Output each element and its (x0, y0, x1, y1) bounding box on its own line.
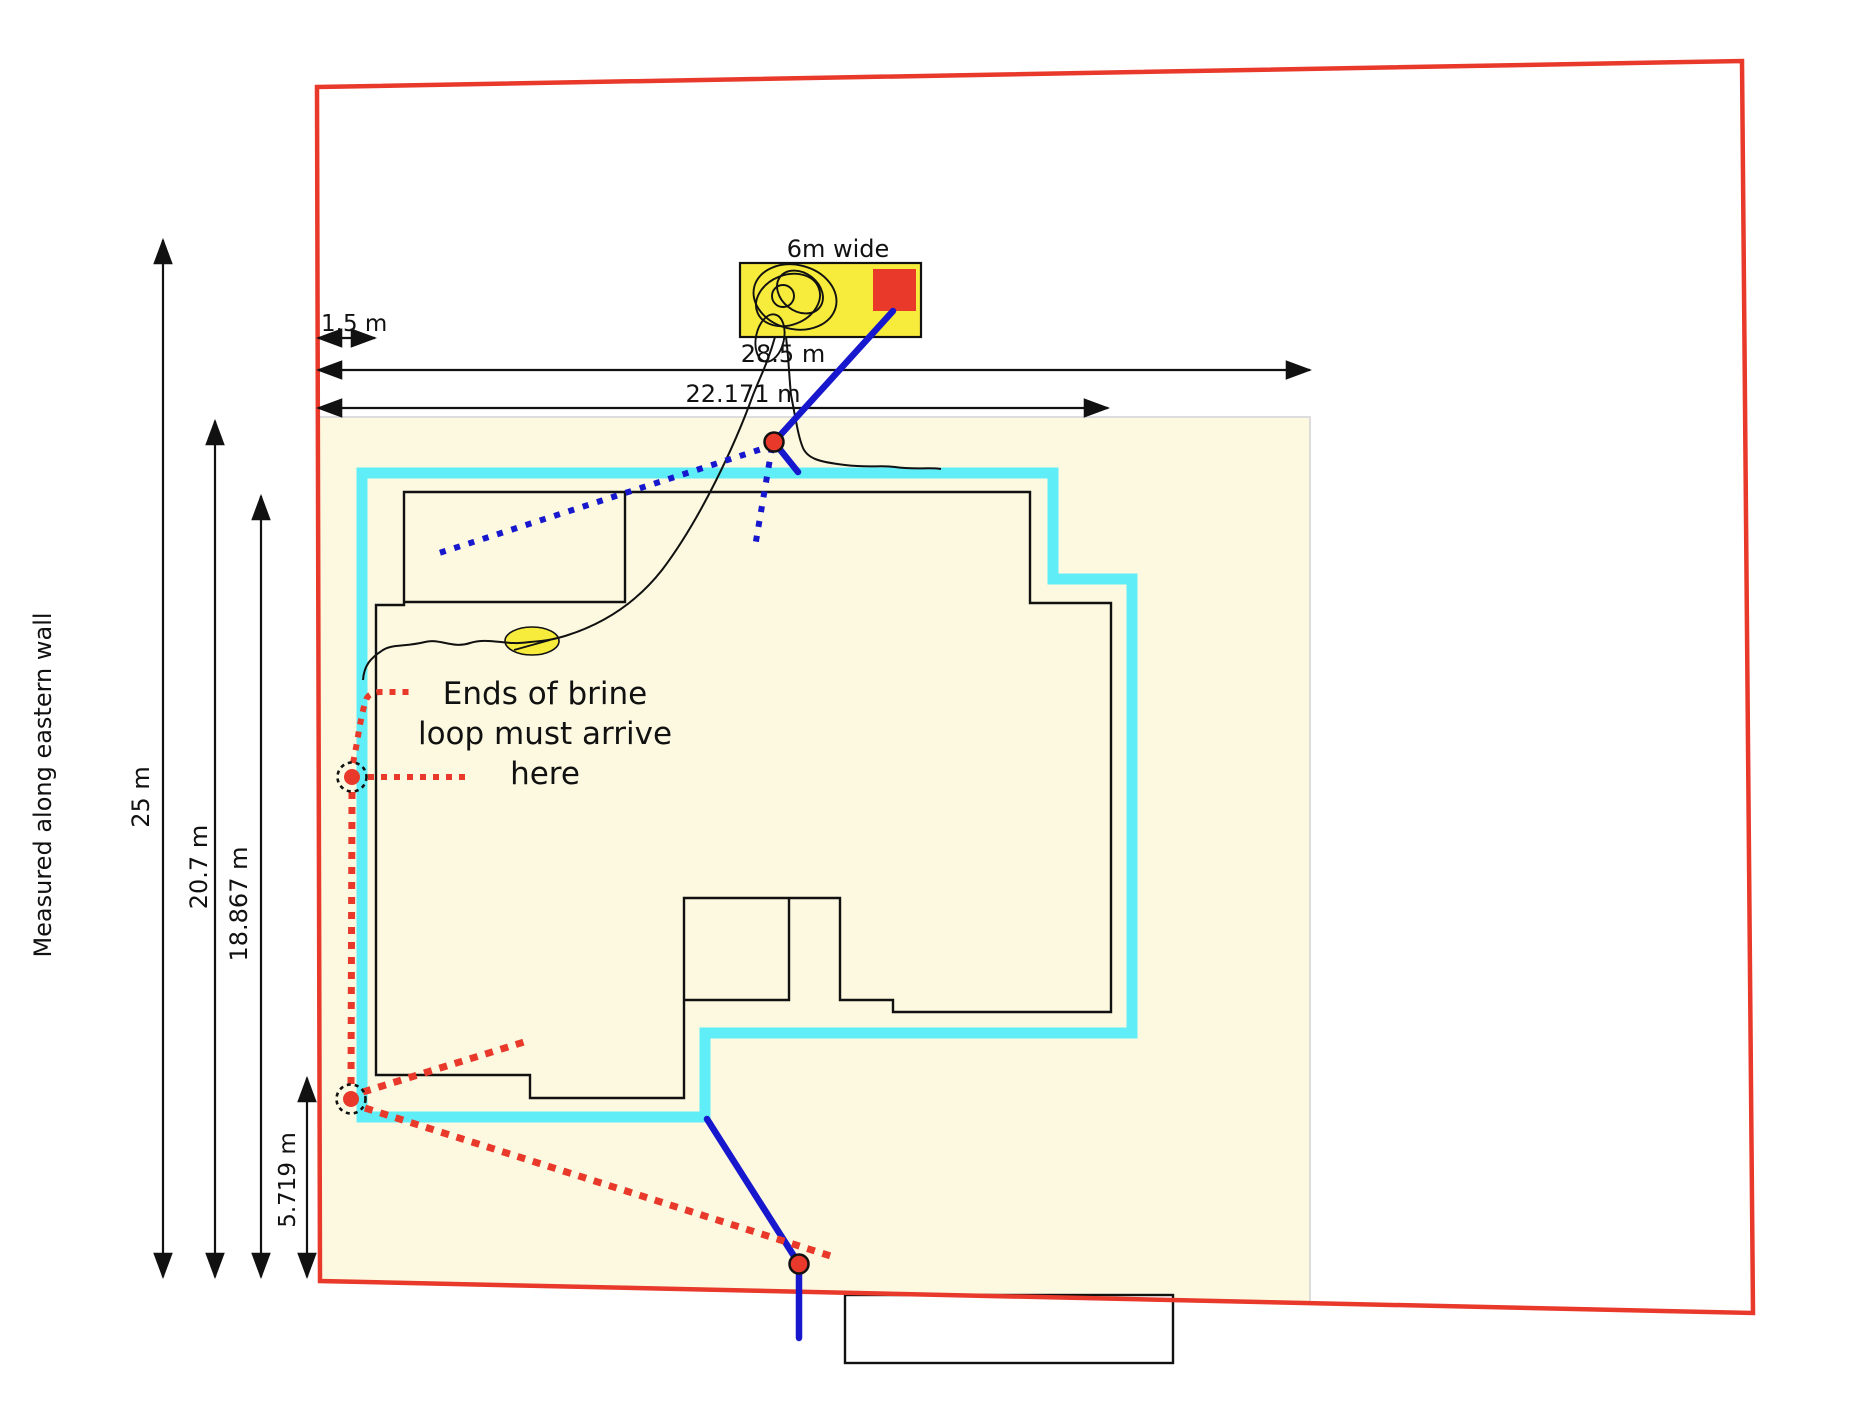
equipment-red-unit (873, 269, 916, 311)
label-dim-5-719: 5.719 m (275, 1132, 301, 1228)
junction-node-bottom (790, 1255, 809, 1274)
label-box-width: 6m wide (787, 235, 890, 263)
label-dim-18-867: 18.867 m (225, 847, 253, 962)
label-dim-1-5: 1.5 m (321, 311, 387, 337)
annotation-line-1: Ends of brine (443, 676, 647, 712)
site-plan-diagram: 6m wide 28.5 m 22.171 m 1.5 m 25 m 20.7 … (0, 0, 1862, 1428)
label-dim-20-7: 20.7 m (185, 825, 213, 909)
site-plan-canvas: 6m wide 28.5 m 22.171 m 1.5 m 25 m 20.7 … (0, 0, 1862, 1428)
label-dim-22-171: 22.171 m (686, 380, 801, 408)
annotation-line-3: here (510, 756, 580, 792)
annotation-line-2: loop must arrive (418, 716, 672, 752)
junction-node-top (765, 433, 784, 452)
site-area-fill (318, 417, 1310, 1302)
label-eastern-wall-note: Measured along eastern wall (29, 612, 57, 957)
outbuilding-rect (845, 1295, 1173, 1363)
label-dim-28-5: 28.5 m (741, 340, 825, 368)
label-dim-25: 25 m (127, 766, 155, 828)
